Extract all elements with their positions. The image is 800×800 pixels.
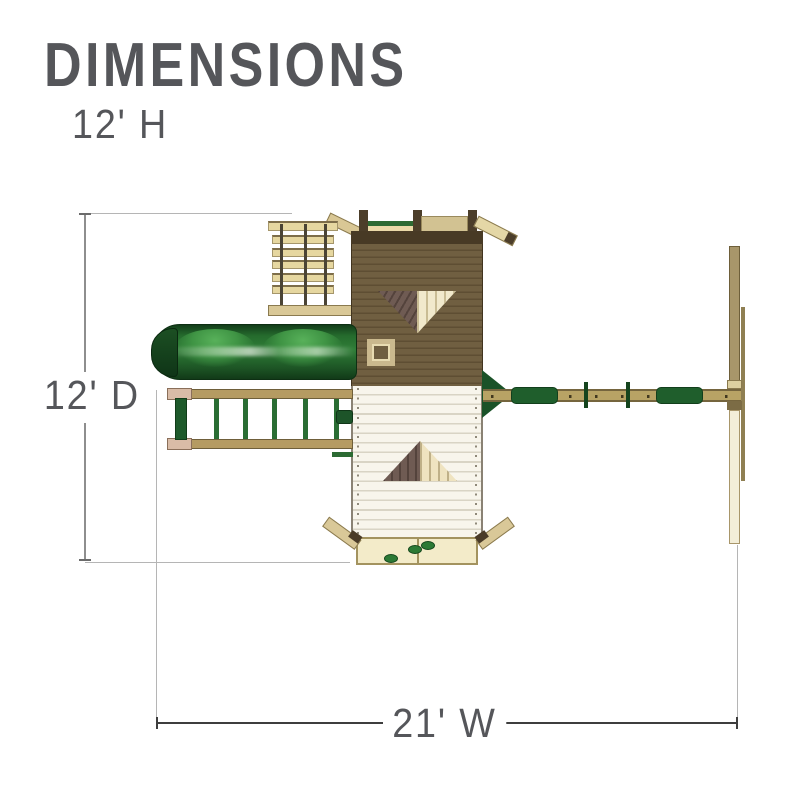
depth-top-extension-line (85, 213, 292, 214)
ladder-rung (214, 399, 219, 439)
width-dimension-left-tick (156, 717, 158, 729)
swing-beam-pad (656, 387, 703, 404)
depth-dimension-bottom-tick (79, 559, 91, 561)
brace-dark-tip (504, 232, 517, 245)
climbing-wall (356, 537, 478, 565)
height-label: 12' H (72, 101, 168, 148)
porch-screw-column (475, 388, 477, 536)
swing-frame-bracket (727, 380, 742, 389)
depth-label: 12' D (42, 372, 147, 423)
ladder-rung-wide (175, 398, 187, 440)
roof-skylight-window (367, 339, 395, 366)
width-label: 21' W (383, 700, 506, 751)
rope-ladder-rope (324, 224, 327, 308)
width-right-extension-line (737, 545, 738, 722)
telescope (336, 410, 353, 424)
swing-beam-pad (511, 387, 558, 404)
swing-frame-bracket-lower (727, 401, 742, 410)
porch-screw-column (357, 388, 359, 536)
ladder-rung (272, 399, 277, 439)
swing-frame-leg (741, 307, 745, 481)
ladder-green-strip (332, 452, 353, 457)
rope-ladder-rope (280, 224, 283, 308)
ladder-rung (303, 399, 308, 439)
roof-ridge-beam (351, 231, 483, 244)
ladder-rung (243, 399, 248, 439)
swing-hanger (626, 382, 630, 408)
depth-dimension-top-tick (79, 213, 91, 215)
swing-frame-post-lower (729, 410, 740, 544)
tube-slide-exit-cap (151, 328, 178, 377)
climbing-hold (421, 541, 435, 550)
ladder-rail-top (167, 389, 353, 399)
width-dimension-right-tick (736, 717, 738, 729)
climbing-hold (384, 554, 398, 563)
swing-hanger (584, 382, 588, 408)
swing-frame-post-upper (729, 246, 740, 384)
climbing-hold (408, 545, 422, 554)
rope-ladder-base-plank (268, 305, 354, 316)
skylight-inner (372, 344, 390, 361)
tube-slide-highlight (165, 347, 355, 356)
ladder-rail-bottom (167, 439, 353, 449)
page-title: DIMENSIONS (44, 30, 407, 101)
dimensions-diagram-page: DIMENSIONS 12' H 12' D 21' W (0, 0, 800, 800)
rope-ladder-top-rung (268, 221, 338, 231)
depth-bottom-extension-line (85, 562, 350, 563)
rope-ladder-rope (304, 224, 307, 308)
width-left-extension-line (156, 390, 157, 717)
